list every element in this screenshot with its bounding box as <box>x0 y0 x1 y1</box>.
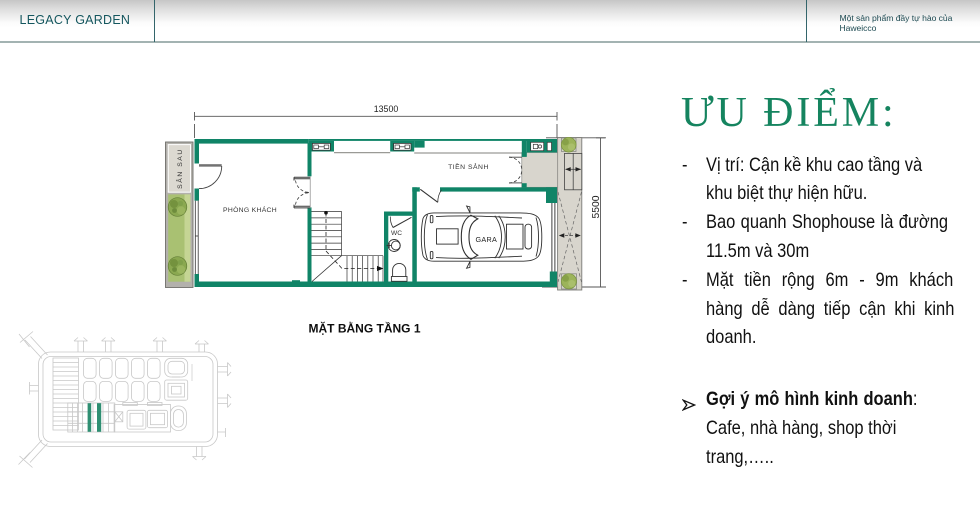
svg-text:SÂN SAU: SÂN SAU <box>175 148 184 189</box>
svg-text:PHÒNG KHÁCH: PHÒNG KHÁCH <box>223 205 277 214</box>
svg-text:MẶT BẰNG TẦNG 1: MẶT BẰNG TẦNG 1 <box>309 321 421 336</box>
svg-text:13500: 13500 <box>374 104 399 114</box>
svg-text:TIỀN SẢNH: TIỀN SẢNH <box>448 161 489 171</box>
svg-text:GARA: GARA <box>476 235 498 244</box>
svg-text:WC: WC <box>391 230 402 237</box>
svg-text:5500: 5500 <box>591 195 602 218</box>
